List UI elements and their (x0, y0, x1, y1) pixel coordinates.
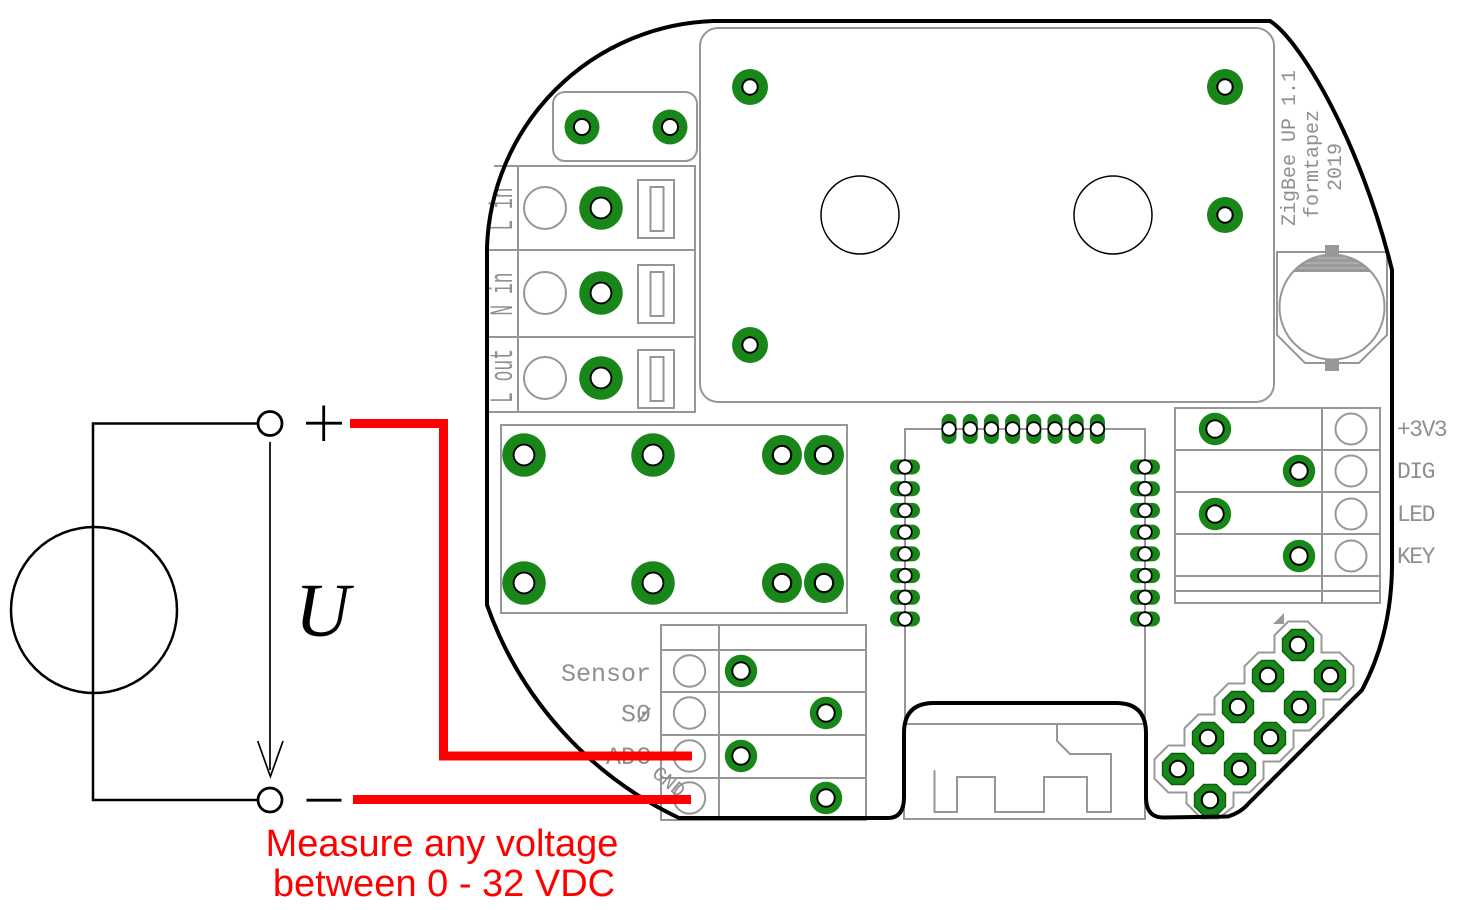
svg-text:U: U (295, 569, 354, 653)
svg-text:between 0 - 32 VDC: between 0 - 32 VDC (273, 863, 615, 905)
svg-text:ZigBee UP 1.1: ZigBee UP 1.1 (1279, 70, 1302, 226)
svg-text:KEY: KEY (1397, 544, 1436, 570)
svg-text:2019: 2019 (1325, 143, 1348, 191)
svg-text:formtapez: formtapez (1302, 110, 1325, 218)
svg-text:L out: L out (485, 349, 522, 403)
svg-text:+3V3: +3V3 (1397, 417, 1447, 443)
svg-text:N in: N in (485, 272, 522, 315)
svg-text:DIG: DIG (1397, 459, 1435, 485)
svg-text:LED: LED (1397, 502, 1435, 528)
svg-text:Sensor: Sensor (561, 660, 651, 689)
svg-text:S0: S0 (621, 701, 651, 730)
svg-text:Measure any voltage: Measure any voltage (266, 823, 619, 865)
